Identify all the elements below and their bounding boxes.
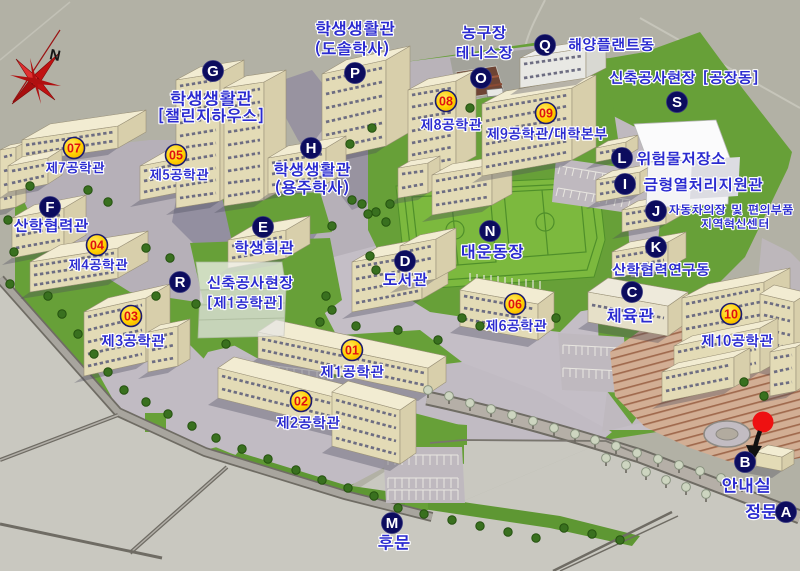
svg-text:A: A (781, 504, 792, 521)
svg-text:02: 02 (294, 395, 308, 409)
svg-text:E: E (258, 219, 268, 236)
svg-text:L: L (617, 150, 626, 167)
svg-text:R: R (175, 274, 186, 291)
svg-text:09: 09 (539, 107, 553, 121)
svg-text:S: S (672, 94, 682, 111)
svg-text:01: 01 (345, 344, 359, 358)
svg-text:06: 06 (508, 298, 522, 312)
svg-text:G: G (207, 63, 219, 80)
svg-text:03: 03 (124, 310, 138, 324)
svg-text:F: F (45, 199, 54, 216)
svg-text:04: 04 (90, 239, 104, 253)
svg-text:I: I (623, 176, 627, 193)
svg-text:Q: Q (539, 37, 551, 54)
svg-text:N: N (485, 223, 496, 240)
svg-text:M: M (386, 515, 399, 532)
svg-text:07: 07 (67, 142, 81, 156)
svg-text:08: 08 (439, 95, 453, 109)
svg-text:H: H (306, 140, 317, 157)
svg-text:J: J (652, 203, 660, 220)
svg-text:B: B (740, 454, 751, 471)
svg-text:10: 10 (724, 308, 738, 322)
svg-text:P: P (350, 65, 360, 82)
svg-text:D: D (400, 253, 411, 270)
svg-text:05: 05 (169, 149, 183, 163)
svg-text:O: O (475, 70, 487, 87)
svg-text:K: K (651, 239, 662, 256)
svg-text:C: C (627, 284, 638, 301)
